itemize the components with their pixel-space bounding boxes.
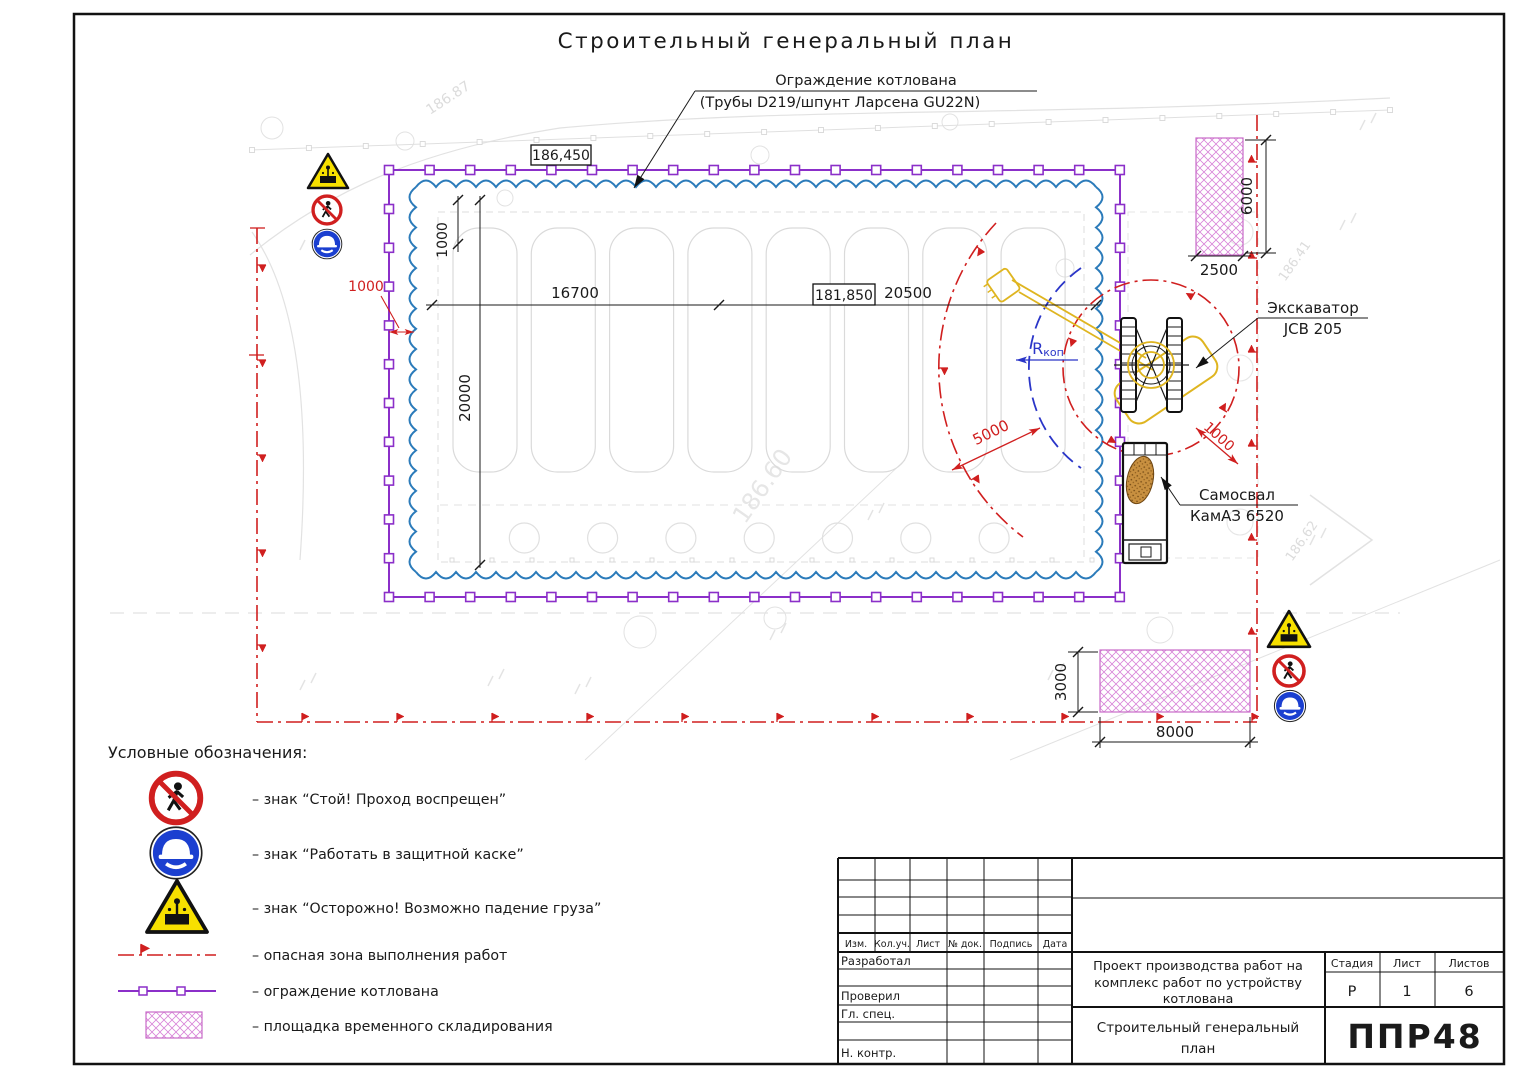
legend-item-label: – знак “Работать в защитной каске”	[252, 847, 524, 863]
legend-item-label: – площадка временного складирования	[252, 1019, 553, 1035]
no-pedestrians-sign-icon	[313, 196, 341, 224]
legend-heading: Условные обозначения:	[108, 743, 307, 762]
sheet-title-line: план	[1181, 1041, 1216, 1057]
sheet-title-line: Строительный генеральный	[1097, 1020, 1299, 1036]
excavator-callout-line1: Экскаватор	[1267, 299, 1359, 317]
title-block: Изм. Кол.уч. Лист № док. Подпись Дата Ра…	[838, 858, 1504, 1064]
fence-top-elevation: 186,450	[532, 148, 590, 164]
dim-storage-top-height: 6000	[1238, 177, 1256, 215]
truck-callout-line1: Самосвал	[1199, 486, 1275, 504]
role-label: Проверил	[841, 989, 900, 1003]
legend-item-label: – ограждение котлована	[252, 984, 439, 1000]
hard-hat-sign-icon	[1274, 690, 1305, 721]
revision-header: Кол.уч.	[874, 939, 910, 950]
stage-value: Р	[1348, 984, 1357, 1000]
revision-header: Лист	[916, 939, 941, 950]
stage-header: Стадия	[1331, 957, 1373, 970]
no-pedestrians-sign-icon	[152, 774, 201, 823]
dim-storage-bottom-width: 8000	[1156, 723, 1194, 741]
sheet-total: 6	[1464, 984, 1473, 1000]
storage-area-top	[1196, 138, 1243, 255]
revision-header: Дата	[1043, 939, 1068, 950]
signs-bottom-right	[1268, 611, 1310, 722]
company-logo: ППР48	[1347, 1017, 1482, 1056]
fence-callout-line1: Ограждение котлована	[775, 73, 957, 89]
dim-pit-total: 20500	[884, 284, 932, 302]
revision-header: Изм.	[845, 939, 867, 950]
dump-truck	[1122, 443, 1167, 563]
signs-top-left	[308, 154, 348, 259]
dim-storage-top-width: 2500	[1200, 261, 1238, 279]
danger-arc	[939, 223, 1023, 537]
site-plan-svg: 186.87 186.41 186.62 186.60 Строительный…	[0, 0, 1527, 1080]
legend: Условные обозначения: – знак “Стой! Прох…	[108, 743, 601, 1038]
legend-item-label: – опасная зона выполнения работ	[252, 948, 507, 964]
hard-hat-sign-icon	[312, 229, 342, 259]
dig-radius: Rкоп	[1016, 268, 1081, 468]
contour-label: 186.41	[1276, 238, 1314, 284]
page-title: Строительный генеральный план	[558, 29, 1015, 54]
dim-pit-width: 16700	[551, 284, 599, 302]
contour-label: 186.60	[727, 444, 798, 529]
excavator-callout-line2: JCB 205	[1283, 320, 1343, 338]
danger-zone-boundary	[249, 115, 1259, 722]
truck-callout-line2: КамАЗ 6520	[1190, 507, 1284, 525]
revision-header: Подпись	[990, 939, 1033, 950]
legend-item-label: – знак “Осторожно! Возможно падение груз…	[252, 901, 601, 917]
legend-item-label: – знак “Стой! Проход воспрещен”	[252, 792, 506, 808]
contour-label: 186.87	[423, 78, 473, 118]
project-name-line: котлована	[1163, 992, 1234, 1007]
revision-header: № док.	[948, 939, 982, 950]
danger-zone-flags	[257, 155, 1259, 722]
no-pedestrians-sign-icon	[1274, 656, 1304, 686]
role-label: Н. контр.	[841, 1046, 896, 1060]
fence-callout-line2: (Трубы D219/шпунт Ларсена GU22N)	[700, 95, 981, 111]
dim-storage-bottom-height: 3000	[1052, 663, 1070, 701]
project-name-line: комплекс работ по устройству	[1094, 976, 1302, 991]
hard-hat-sign-icon	[150, 827, 201, 878]
sheets-header: Листов	[1448, 957, 1489, 970]
pit-fence	[385, 166, 1125, 602]
sheet-number: 1	[1402, 984, 1411, 1000]
dig-radius-label: Rкоп	[1032, 339, 1064, 359]
falling-load-sign-icon	[308, 154, 348, 188]
drawing-sheet: 186.87 186.41 186.62 186.60 Строительный…	[0, 0, 1527, 1080]
dim-fence-offset: 1000	[348, 279, 384, 295]
dim-pit-height: 20000	[456, 374, 474, 422]
falling-load-sign-icon	[147, 881, 207, 932]
project-name-line: Проект производства работ на	[1093, 959, 1303, 974]
role-label: Разработал	[841, 954, 911, 968]
contour-label: 186.62	[1283, 518, 1321, 564]
pit-bottom-elevation: 181,850	[815, 288, 873, 304]
storage-area-bottom	[1100, 650, 1250, 712]
falling-load-sign-icon	[1268, 611, 1310, 647]
dim-offset-top: 1000	[435, 222, 451, 258]
sheet-header: Лист	[1393, 957, 1421, 970]
role-label: Гл. спец.	[841, 1007, 895, 1021]
